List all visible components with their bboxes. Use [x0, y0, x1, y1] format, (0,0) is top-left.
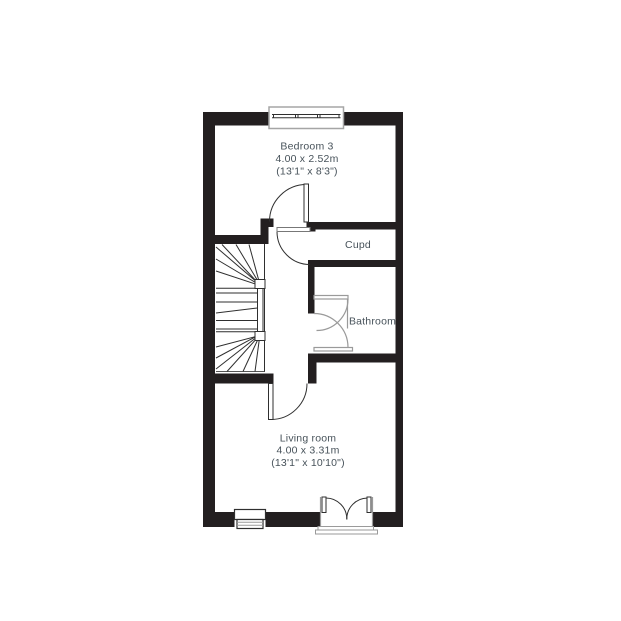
french-door-left-swing — [326, 498, 347, 520]
stairs-winders-top — [216, 245, 260, 285]
wall-bottom-right — [373, 512, 404, 527]
bedroom-door — [270, 184, 309, 222]
newel-post-top — [255, 280, 265, 289]
living-room-door-swing — [271, 384, 307, 420]
french-door-left-leaf — [322, 497, 326, 513]
living-room-label: Living room — [280, 433, 337, 445]
bathroom-label: Bathroom — [349, 316, 396, 328]
living-room-size-metric: 4.00 x 3.31m — [276, 445, 339, 457]
wall-bottom-middle — [266, 512, 321, 527]
wall-bedroom-cupboard — [307, 222, 397, 230]
living-room-window-frame — [235, 510, 266, 520]
cupboard-door — [277, 228, 310, 265]
wall-top-right — [344, 112, 404, 126]
french-doors — [316, 497, 378, 534]
living-room-door — [269, 384, 308, 420]
wall-bathroom-living — [312, 354, 397, 363]
bedroom-size-imperial: (13'1" x 8'3") — [276, 166, 338, 178]
french-doors-step-2 — [316, 530, 378, 534]
newel-post-bottom — [255, 332, 265, 341]
french-door-right-swing — [347, 498, 368, 520]
wall-cupboard-bathroom — [313, 260, 396, 267]
bedroom-size-metric: 4.00 x 2.52m — [275, 153, 338, 165]
stairs-winders-bottom — [216, 336, 260, 372]
bedroom-door-swing — [270, 185, 307, 222]
wall-stairs-top — [215, 235, 269, 244]
wall-left — [203, 112, 215, 527]
cupboard-door-leaf — [277, 228, 310, 232]
floorplan-page: Bedroom 3 4.00 x 2.52m (13'1" x 8'3") Cu… — [0, 0, 621, 621]
stairs-treads — [216, 288, 258, 331]
bedroom-label: Bedroom 3 — [280, 141, 333, 153]
living-room-size-imperial: (13'1" x 10'10") — [271, 457, 345, 469]
cupboard-door-swing — [277, 232, 310, 265]
living-room-window — [235, 510, 266, 529]
wall-bottom-left — [203, 512, 235, 527]
wall-top-left — [203, 112, 269, 126]
wall-living-door-stub — [308, 354, 317, 384]
bathroom-door-leaf-top — [314, 296, 348, 300]
bathroom-door — [314, 296, 353, 352]
french-doors-step-1 — [318, 527, 374, 531]
wall-right — [396, 112, 404, 527]
living-room-door-leaf — [269, 384, 274, 420]
room-labels: Bedroom 3 4.00 x 2.52m (13'1" x 8'3") Cu… — [271, 141, 396, 470]
french-doors-frame — [321, 497, 373, 526]
living-room-window-sill — [237, 520, 263, 529]
french-door-right-leaf — [367, 497, 371, 513]
stairs-handrail — [255, 280, 265, 341]
cupboard-label: Cupd — [345, 239, 371, 251]
wall-bedroom-door-stub — [261, 219, 274, 228]
bedroom-door-leaf — [304, 184, 309, 222]
floorplan-canvas: Bedroom 3 4.00 x 2.52m (13'1" x 8'3") Cu… — [0, 0, 621, 621]
bathroom-door-leaf-bottom — [314, 348, 353, 352]
staircase — [216, 244, 265, 372]
handrail — [258, 289, 264, 332]
bedroom-window — [269, 107, 344, 129]
wall-bathroom-left — [308, 260, 315, 314]
wall-stairs-bottom — [215, 374, 274, 384]
